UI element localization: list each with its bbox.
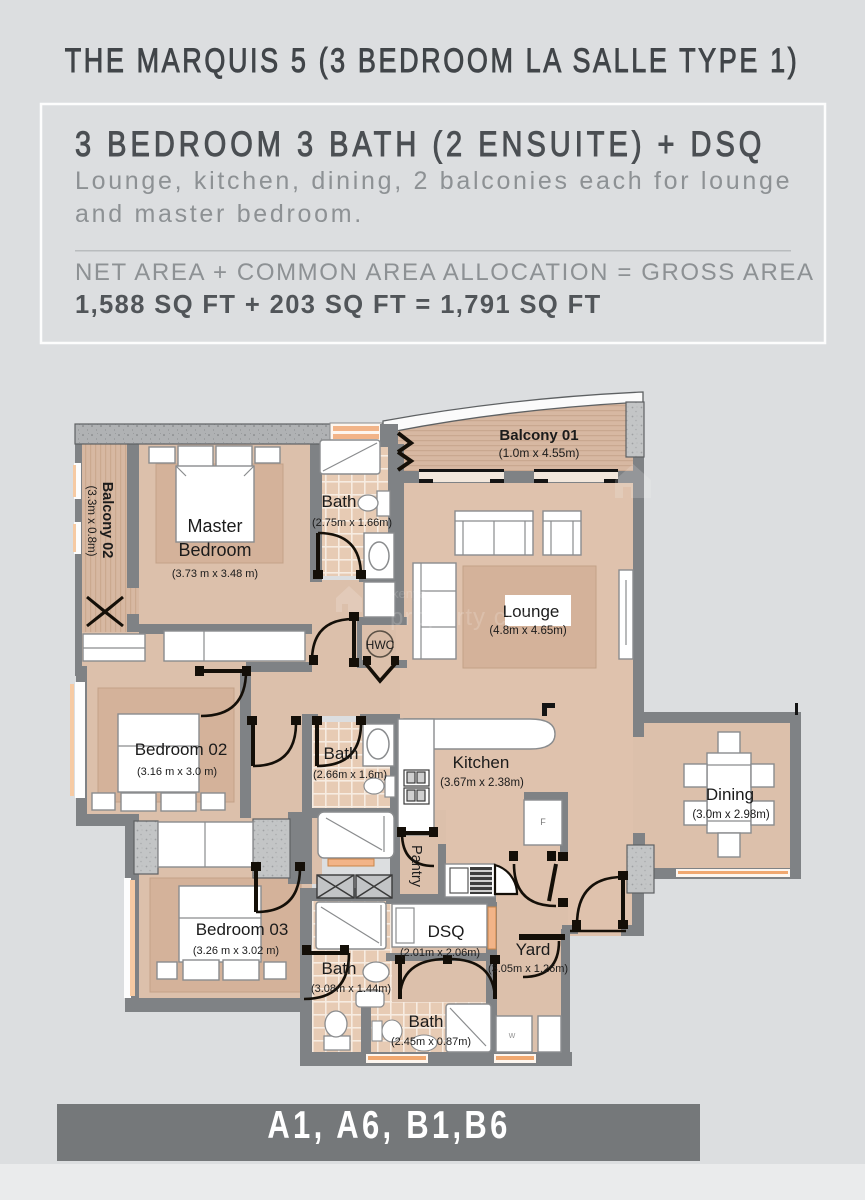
svg-text:and master bedroom.: and master bedroom. [75,200,364,228]
svg-text:(2.01m x 2.06m): (2.01m x 2.06m) [400,947,480,959]
svg-text:Bedroom 03: Bedroom 03 [196,920,289,939]
svg-text:Bedroom 02: Bedroom 02 [135,740,228,759]
svg-text:Balcony 02: Balcony 02 [99,482,115,559]
svg-text:(3.67m x 2.38m): (3.67m x 2.38m) [440,777,524,789]
svg-text:A1, A6, B1,B6: A1, A6, B1,B6 [267,1104,510,1147]
svg-text:(2.66m x 1.6m): (2.66m x 1.6m) [313,769,387,781]
svg-text:property cen: property cen [390,604,535,631]
svg-text:Yard: Yard [516,940,551,959]
svg-text:1,588 SQ FT + 203 SQ FT = 1,79: 1,588 SQ FT + 203 SQ FT = 1,791 SQ FT [75,291,602,319]
svg-text:(3.3m x 0.8m): (3.3m x 0.8m) [85,486,97,557]
svg-text:(3.08m x 1.44m): (3.08m x 1.44m) [311,983,391,995]
svg-text:(3.0m x 2.98m): (3.0m x 2.98m) [692,809,769,821]
svg-text:(1.0m x 4.55m): (1.0m x 4.55m) [499,446,580,460]
svg-text:kenya: kenya [392,586,427,601]
svg-text:THE MARQUIS 5 (3 BEDROOM LA SA: THE MARQUIS 5 (3 BEDROOM LA SALLE TYPE 1… [65,41,800,80]
svg-text:3 BEDROOM 3 BATH (2 ENSUITE) +: 3 BEDROOM 3 BATH (2 ENSUITE) + DSQ [75,124,765,163]
svg-text:Dining: Dining [706,785,754,804]
svg-text:(3.26 m x 3.02 m): (3.26 m x 3.02 m) [193,945,279,957]
svg-text:(3.05m x 1.26m): (3.05m x 1.26m) [488,963,568,975]
svg-text:Bath: Bath [322,492,357,511]
svg-text:(2.75m x 1.66m): (2.75m x 1.66m) [312,517,392,529]
svg-text:Bedroom: Bedroom [178,540,251,560]
svg-text:(2.45m x 0.87m): (2.45m x 0.87m) [391,1036,471,1048]
svg-text:Bath: Bath [322,959,357,978]
svg-text:(3.73 m x 3.48 m): (3.73 m x 3.48 m) [172,568,258,580]
svg-text:HWC: HWC [366,638,395,652]
svg-text:Master: Master [187,516,242,536]
svg-text:Bath: Bath [409,1012,444,1031]
svg-text:Lounge, kitchen, dining, 2 bal: Lounge, kitchen, dining, 2 balconies eac… [75,167,792,195]
svg-text:w: w [508,1030,516,1040]
svg-text:Balcony 01: Balcony 01 [499,427,578,444]
svg-text:(3.16 m x 3.0 m): (3.16 m x 3.0 m) [137,766,217,778]
svg-text:NET AREA + COMMON AREA ALLOCAT: NET AREA + COMMON AREA ALLOCATION = GROS… [75,259,815,286]
svg-text:Pantry: Pantry [408,845,424,888]
svg-text:Bath: Bath [324,744,359,763]
svg-text:Kitchen: Kitchen [453,753,510,772]
svg-text:F: F [540,817,546,827]
svg-text:DSQ: DSQ [428,922,465,941]
